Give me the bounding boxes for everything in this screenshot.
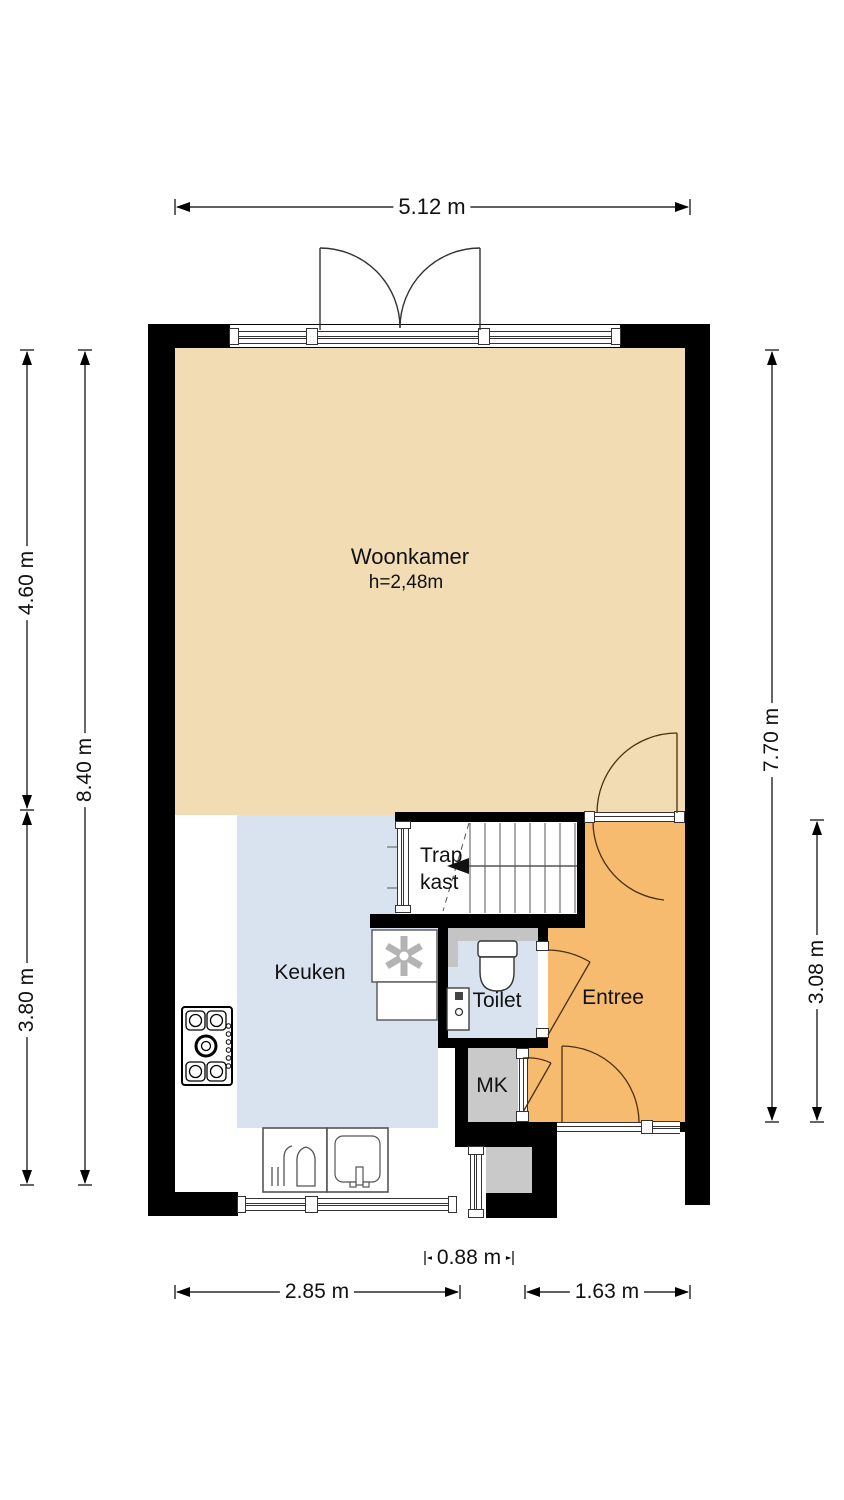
left-wall [148,324,175,1216]
window-mullion [478,328,490,345]
woonkamer-height-note: h=2,48m [369,572,443,594]
door-jamb [536,1028,549,1038]
keuken-floor [237,815,397,928]
window-mullion [395,905,411,913]
window-mullion [468,1146,484,1155]
window-mullion [395,821,411,829]
door-threshold [595,812,675,822]
stove-icon [182,1007,232,1085]
entree-label: Entree [582,986,644,1010]
mk-bottom-wall [455,1122,557,1147]
dim-label-right-inner: 3.08 m [805,935,829,1009]
floor-plan: Woonkamer h=2,48m Keuken Trap kast Toile… [0,0,844,1500]
dim-label-bottom-left: 2.85 m [280,1280,354,1304]
woonkamer-hall-wall [395,812,585,822]
keuken-floor [237,928,438,1128]
toilet-duct [448,928,458,967]
door-jamb [674,811,685,823]
window-mullion [237,1196,246,1213]
door-jamb [536,941,549,951]
window-mullion [468,1209,484,1218]
bottom-left-wall [148,1192,238,1216]
woonkamer-label: Woonkamer [351,544,469,570]
right-wall [685,324,710,1205]
stairs-bottom-wall [370,914,585,928]
window-mullion [305,1196,318,1213]
window-mullion [611,328,621,345]
window-mullion [229,328,239,345]
porch-bottom-wall [486,1193,557,1218]
trapkast-label: Trap kast [420,842,486,896]
entree-floor [528,1038,685,1122]
trapkast-panel [397,822,409,912]
keuken-label: Keuken [274,961,345,985]
mk-left-wall [455,1048,468,1122]
window-icon [470,1147,482,1218]
dim-label-bottom-right: 1.63 m [570,1280,644,1304]
dim-label-bottom-entry: 0.88 m [432,1246,506,1270]
window-mullion [306,328,318,345]
sink-icon [327,1128,388,1192]
window-mullion [641,1120,653,1134]
mk-label: MK [476,1074,508,1098]
toilet-label: Toilet [472,989,521,1013]
window-icon [652,1121,680,1134]
dim-label-top-width: 5.12 m [393,194,470,220]
toilet-left-wall [438,928,448,1048]
door-jamb [516,1111,529,1122]
door-jamb [516,1048,529,1059]
door-swing-icon [320,248,480,330]
toilet-duct [448,928,538,941]
dim-label-left-inner-bottom: 3.80 m [15,963,39,1037]
entree-floor [548,928,585,1038]
door-threshold [557,1122,642,1132]
door-threshold [519,1058,528,1112]
toilet-bottom-wall [438,1038,548,1048]
dim-label-left-inner-top: 4.60 m [15,546,39,620]
stairs-right-wall [577,812,585,928]
dim-label-right-outer: 7.70 m [760,703,784,777]
door-jamb [584,811,595,823]
window-icon [238,1198,455,1211]
dishwasher-rack-icon [263,1128,327,1192]
window-icon [232,331,618,344]
dim-label-left-outer: 8.40 m [73,733,97,807]
door-opening [538,951,548,1028]
porch-floor [486,1147,532,1193]
window-mullion [448,1196,457,1213]
